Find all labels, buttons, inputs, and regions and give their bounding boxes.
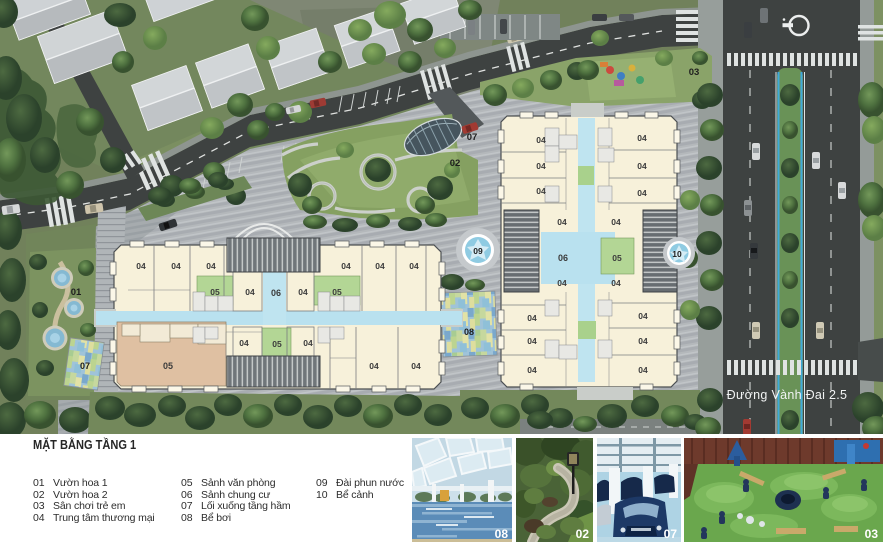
svg-text:04: 04	[536, 186, 546, 196]
svg-text:06: 06	[271, 288, 281, 298]
svg-text:07: 07	[664, 527, 678, 541]
svg-text:08: 08	[495, 527, 509, 541]
svg-text:08: 08	[464, 327, 474, 337]
svg-text:04: 04	[527, 313, 537, 323]
svg-text:Đường Vành Đai 2.5: Đường Vành Đai 2.5	[727, 388, 848, 402]
svg-text:02: 02	[576, 527, 590, 541]
svg-text:04: 04	[341, 261, 351, 271]
svg-text:07: 07	[80, 361, 90, 371]
svg-text:04: 04	[527, 365, 537, 375]
svg-text:09: 09	[473, 246, 483, 256]
svg-text:04: 04	[298, 287, 308, 297]
svg-text:05: 05	[272, 339, 282, 349]
svg-text:04: 04	[557, 278, 567, 288]
svg-text:04: 04	[409, 261, 419, 271]
svg-text:01: 01	[71, 287, 82, 298]
svg-text:04: 04	[239, 338, 249, 348]
svg-text:10: 10	[672, 249, 682, 259]
svg-text:05: 05	[332, 287, 342, 297]
svg-text:04: 04	[206, 261, 216, 271]
svg-text:04: 04	[637, 133, 647, 143]
svg-text:04: 04	[536, 161, 546, 171]
svg-text:04: 04	[638, 311, 648, 321]
svg-text:04: 04	[638, 336, 648, 346]
svg-text:02: 02	[450, 158, 461, 169]
svg-text:04: 04	[536, 135, 546, 145]
svg-text:04: 04	[171, 261, 181, 271]
svg-text:04: 04	[638, 365, 648, 375]
svg-text:04: 04	[637, 161, 647, 171]
svg-text:04: 04	[303, 338, 313, 348]
svg-text:04: 04	[637, 188, 647, 198]
svg-text:04: 04	[375, 261, 385, 271]
svg-text:06: 06	[558, 253, 568, 263]
svg-text:04: 04	[611, 278, 621, 288]
svg-text:03: 03	[689, 67, 700, 78]
svg-text:04: 04	[369, 361, 379, 371]
svg-text:04: 04	[245, 287, 255, 297]
svg-text:05: 05	[210, 287, 220, 297]
svg-text:05: 05	[612, 253, 622, 263]
svg-text:05: 05	[163, 361, 173, 371]
svg-text:04: 04	[557, 217, 567, 227]
svg-text:07: 07	[467, 132, 478, 143]
svg-text:04: 04	[611, 217, 621, 227]
svg-text:04: 04	[527, 336, 537, 346]
svg-text:04: 04	[136, 261, 146, 271]
svg-text:04: 04	[411, 361, 421, 371]
svg-text:03: 03	[865, 527, 879, 541]
